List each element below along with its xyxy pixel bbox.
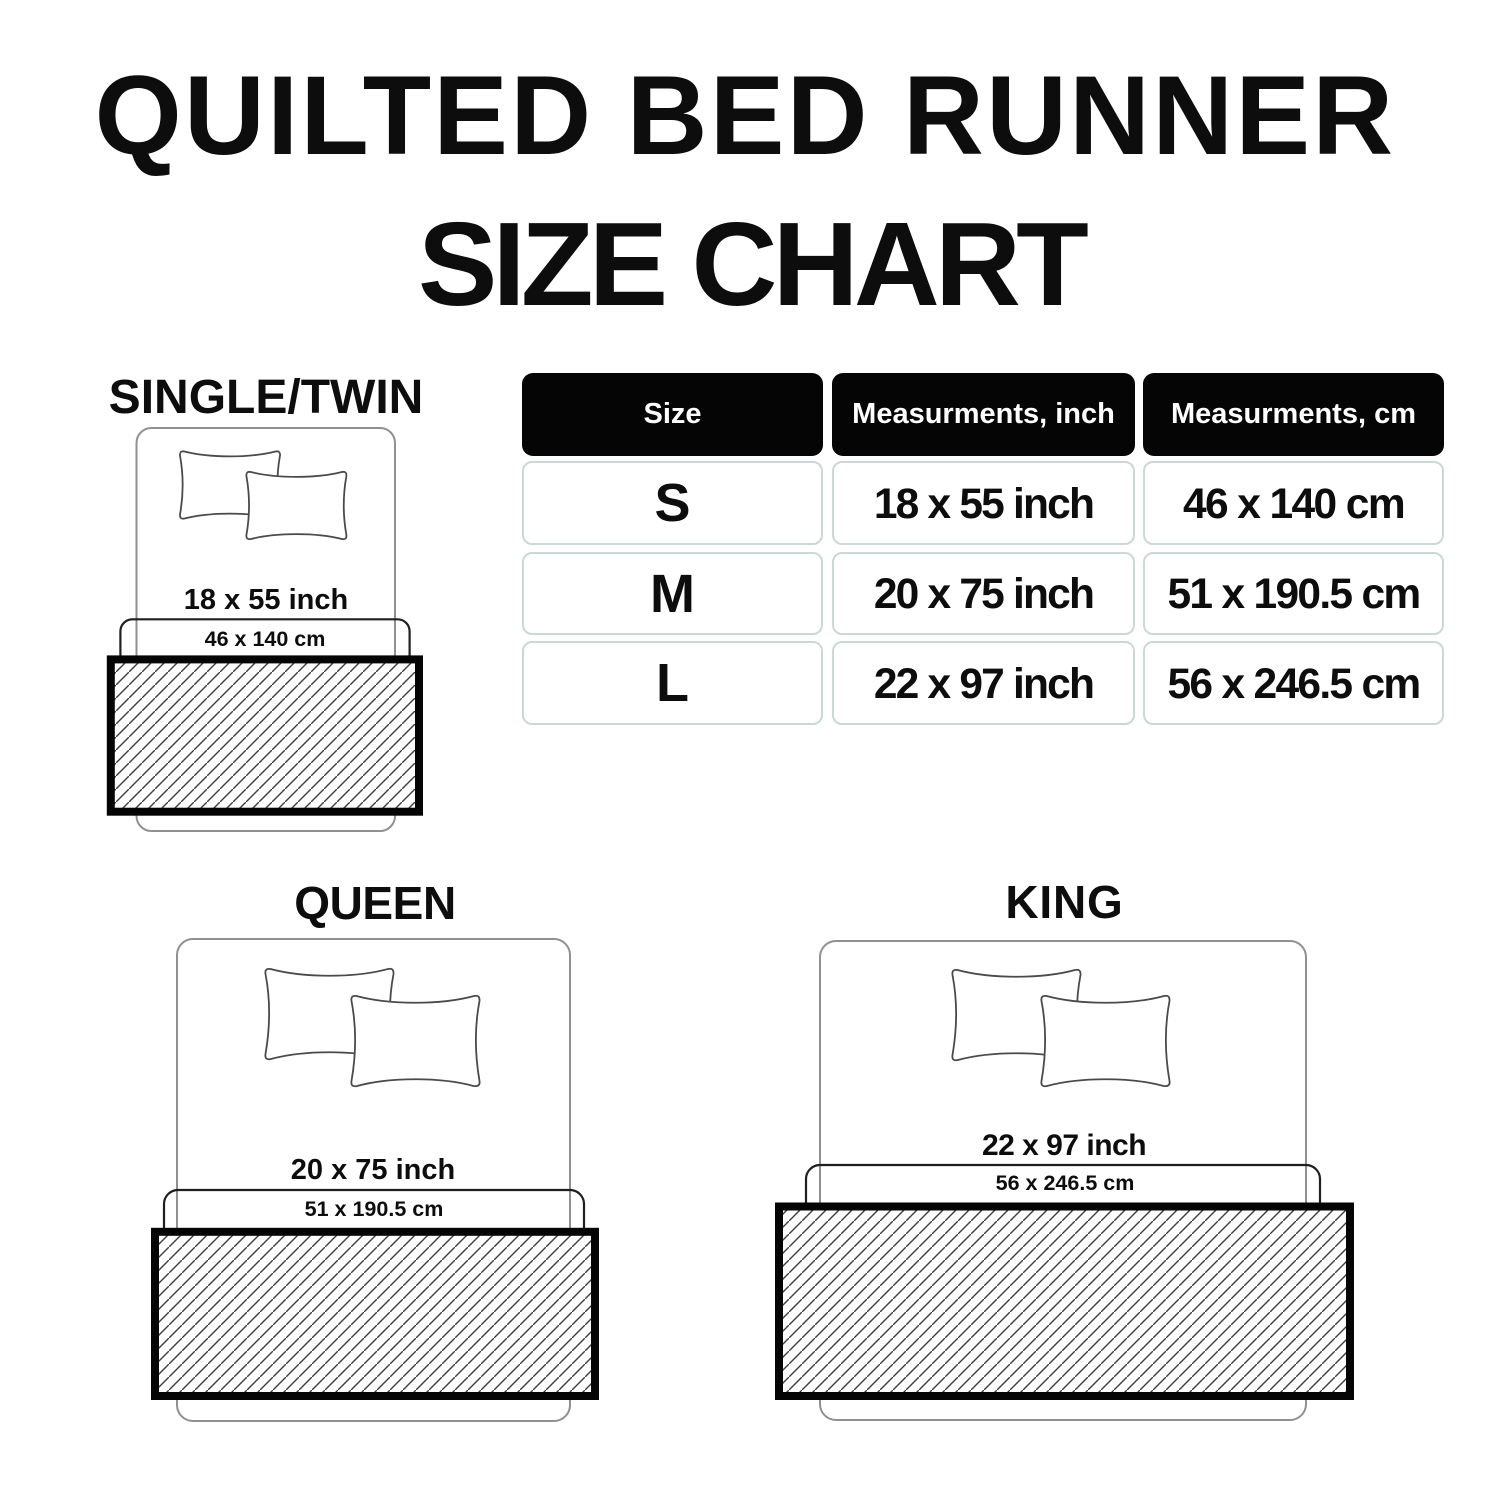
svg-text:KING: KING <box>1005 876 1123 928</box>
svg-text:QUEEN: QUEEN <box>294 877 456 929</box>
svg-text:SINGLE/TWIN: SINGLE/TWIN <box>109 371 424 424</box>
svg-text:46 x 140 cm: 46 x 140 cm <box>205 627 326 651</box>
svg-text:20 x 75 inch: 20 x 75 inch <box>291 1154 455 1186</box>
svg-text:22 x 97 inch: 22 x 97 inch <box>982 1129 1146 1162</box>
svg-text:56 x 246.5 cm: 56 x 246.5 cm <box>996 1171 1135 1195</box>
svg-text:18 x 55 inch: 18 x 55 inch <box>184 584 348 616</box>
svg-text:51 x 190.5 cm: 51 x 190.5 cm <box>305 1197 444 1221</box>
